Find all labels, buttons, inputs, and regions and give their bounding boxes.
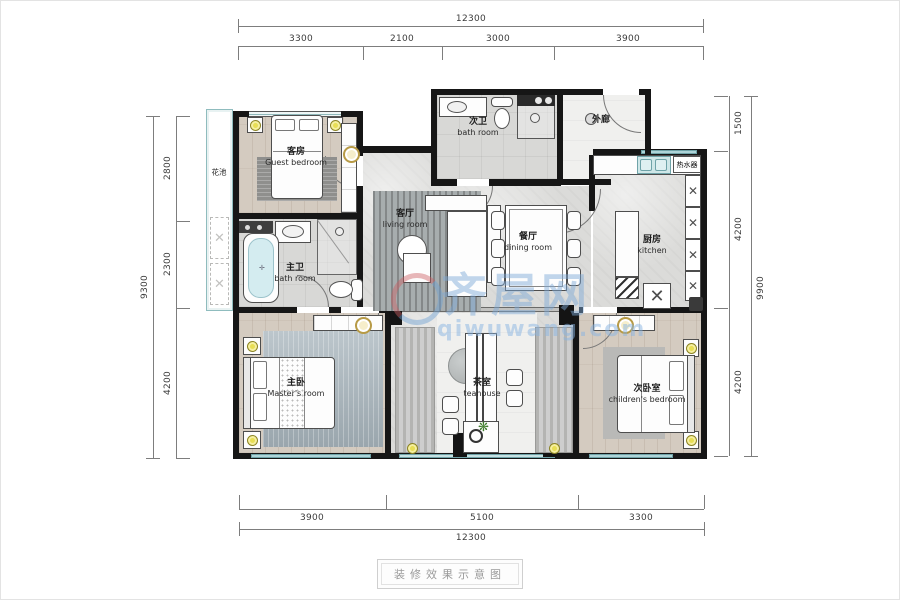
master-label-zh: 主卧 (268, 378, 325, 389)
dim-tick (714, 308, 728, 309)
guest-lamp-icon (250, 120, 261, 131)
corridor-label-zh: 外廊 (592, 115, 610, 126)
master-window (251, 454, 371, 458)
dim-top-seg: 3900 (616, 34, 640, 44)
dim-tick (744, 96, 758, 97)
bath1-label: 主卫 bath room (274, 263, 315, 284)
water-heater-label: 热水器 (677, 160, 698, 170)
master-lamp-icon (247, 341, 258, 352)
dim-tick (146, 116, 160, 117)
wall-left-outer (233, 111, 239, 459)
dim-tick (176, 221, 190, 222)
floor-lamp-icon (549, 443, 560, 454)
wall-master-teahouse-divider (385, 313, 391, 459)
post (559, 305, 574, 325)
children-lamp-icon (686, 435, 697, 446)
dining-label: 餐厅 dining room (504, 232, 552, 253)
faucet-dot-icon (257, 225, 262, 230)
bath2-sink-basin (447, 101, 467, 113)
tea-cushion (442, 418, 459, 435)
bath2-label-zh: 次卫 (457, 117, 498, 128)
teahouse-mat (395, 327, 435, 453)
dim-tick (703, 19, 704, 33)
shower-head-icon (530, 113, 540, 123)
dim-tick (554, 46, 555, 60)
sink-basin (640, 159, 652, 171)
dim-bottom-seg: 3300 (629, 513, 653, 523)
dim-tick (744, 456, 758, 457)
dim-tick (176, 308, 190, 309)
dim-tick (714, 96, 728, 97)
master-lamp-icon (247, 435, 258, 446)
wall-living-top (357, 146, 437, 153)
children-label: 次卧室 children's bedroom (609, 384, 686, 405)
dim-bottom-total-line (239, 529, 704, 530)
pillow (253, 393, 267, 421)
dim-bottom-total: 12300 (456, 533, 486, 543)
guest-wardrobe (341, 123, 357, 213)
bathtub-drain-icon: ✛ (259, 265, 265, 271)
sofa-chaise (447, 211, 487, 297)
pillow (253, 361, 267, 389)
dim-left-seg: 2300 (163, 252, 173, 276)
dim-tick (442, 46, 443, 60)
dim-tick (578, 495, 579, 509)
guest-bedroom-label-en: Guest bedroom (265, 158, 327, 168)
dim-right-total: 9900 (756, 276, 766, 300)
living-label: 客厅 living room (383, 209, 428, 230)
planter-box-icon: ✕ (210, 263, 229, 305)
guest-lamp-icon (330, 120, 341, 131)
living-label-zh: 客厅 (383, 209, 428, 220)
washer-knob-icon (545, 97, 552, 104)
teahouse-label-zh: 茶室 (463, 378, 500, 389)
dim-tick (239, 495, 240, 509)
kitchen-cabinet: ✕ (685, 175, 701, 207)
planter-box-icon: ✕ (210, 217, 229, 259)
master-label-en: Master's room (268, 389, 325, 399)
teahouse-balcony-window (399, 454, 555, 458)
wall-corridor-right (645, 89, 651, 155)
teahouse-label: 茶室 teahouse (463, 378, 500, 399)
kitchen-label-en: kitchen (637, 246, 666, 256)
ceiling-light-icon (343, 146, 360, 163)
children-label-en: children's bedroom (609, 395, 686, 405)
toilet-bowl (329, 281, 353, 298)
wall-bath2-left (431, 89, 437, 186)
teahouse-mat (535, 327, 573, 453)
dining-chair (491, 239, 505, 258)
stove (615, 277, 639, 299)
dim-tick (176, 458, 190, 459)
dim-top-total-line (238, 26, 703, 27)
wall-bath2-corridor-divider (557, 89, 563, 181)
wall-bath2-bottom (431, 179, 561, 186)
dim-left-total-line (153, 116, 154, 458)
kitchen-cabinet: ✕ (685, 239, 701, 271)
kitchen-label: 厨房 kitchen (637, 235, 666, 256)
dim-tick (363, 46, 364, 60)
children-label-zh: 次卧室 (609, 384, 686, 395)
caption-box: 装修效果示意图 (377, 559, 523, 589)
dim-top-seg: 3000 (486, 34, 510, 44)
bath1-label-en: bath room (274, 274, 315, 284)
water-heater: 热水器 (673, 156, 701, 173)
dim-right-total-line (751, 96, 752, 456)
plant-icon: ❋ (478, 421, 489, 434)
bath1-sink-basin (282, 225, 304, 238)
guest-bedroom-label: 客房 Guest bedroom (265, 147, 327, 168)
master-label: 主卧 Master's room (268, 378, 325, 399)
faucet-dot-icon (245, 225, 250, 230)
dim-tick (704, 522, 705, 536)
kitchen-cabinet: ✕ (685, 207, 701, 239)
floor-plan-canvas: ✕ ✕ 花池 客房 G (0, 0, 900, 600)
bath2-label: 次卫 bath room (457, 117, 498, 138)
pillow (275, 119, 295, 131)
ceiling-light-icon (355, 317, 372, 334)
dim-left-seg: 4200 (163, 371, 173, 395)
dim-tick (238, 46, 239, 60)
dining-chair (567, 239, 581, 258)
dim-top-seg: 2100 (390, 34, 414, 44)
dim-tick (714, 456, 728, 457)
dim-bottom-seg-line (239, 509, 704, 510)
dim-tick (703, 46, 704, 60)
dim-left-total: 9300 (140, 275, 150, 299)
corridor-label: 外廊 (592, 115, 610, 126)
dining-label-zh: 餐厅 (504, 232, 552, 243)
dining-chair (567, 267, 581, 286)
dim-tick (238, 19, 239, 33)
dim-right-seg: 4200 (734, 217, 744, 241)
dim-tick (714, 151, 728, 152)
dim-right-seg: 4200 (734, 370, 744, 394)
dining-label-en: dining room (504, 243, 552, 253)
dining-chair (567, 211, 581, 230)
dining-chair (491, 267, 505, 286)
guest-door-gap (357, 156, 363, 186)
dim-bottom-seg: 5100 (470, 513, 494, 523)
bath2-door-gap (457, 179, 489, 186)
pillow (299, 119, 319, 131)
living-label-en: living room (383, 220, 428, 230)
dining-chair (491, 211, 505, 230)
master-wardrobe (313, 315, 383, 331)
dim-tick (146, 458, 160, 459)
wall-hall-top (561, 179, 611, 185)
bath1-door-gap (297, 307, 329, 313)
tea-cushion (506, 390, 523, 407)
teahouse-label-en: teahouse (463, 389, 500, 399)
shower-head-icon (335, 227, 344, 236)
tea-cushion (442, 396, 459, 413)
wall-teahouse-children-divider (573, 313, 579, 459)
floor-lamp-icon (407, 443, 418, 454)
washer-knob-icon (535, 97, 542, 104)
sofa-back (425, 195, 487, 211)
dim-tick (176, 116, 190, 117)
dim-top-seg: 3300 (289, 34, 313, 44)
dim-top-seg-line (238, 46, 703, 47)
dim-right-seg: 1500 (734, 111, 744, 135)
kitchen-island (615, 211, 639, 277)
dim-left-seg-line (176, 116, 177, 458)
bath1-label-zh: 主卫 (274, 263, 315, 274)
guest-bedroom-label-zh: 客房 (265, 147, 327, 158)
master-headboard (243, 357, 251, 429)
dim-tick (386, 495, 387, 509)
caption-text: 装修效果示意图 (381, 563, 519, 585)
tea-cushion (506, 369, 523, 386)
bath2-label-en: bath room (457, 128, 498, 138)
children-lamp-icon (686, 343, 697, 354)
planter-label: 花池 (212, 167, 227, 178)
sink-basin (655, 159, 667, 171)
coffee-table-square (403, 253, 431, 283)
toilet-tank (491, 97, 513, 107)
dim-left-seg: 2800 (163, 156, 173, 180)
children-window (589, 454, 673, 458)
dim-top-total: 12300 (456, 14, 486, 24)
dim-tick (704, 495, 705, 509)
dim-tick (239, 522, 240, 536)
kitchen-appliance (689, 297, 703, 311)
dim-right-seg-line (729, 96, 730, 456)
refrigerator: ✕ (643, 283, 671, 309)
kitchen-label-zh: 厨房 (637, 235, 666, 246)
children-headboard (687, 355, 695, 433)
ceiling-light-icon (617, 317, 634, 334)
dim-bottom-seg: 3900 (300, 513, 324, 523)
